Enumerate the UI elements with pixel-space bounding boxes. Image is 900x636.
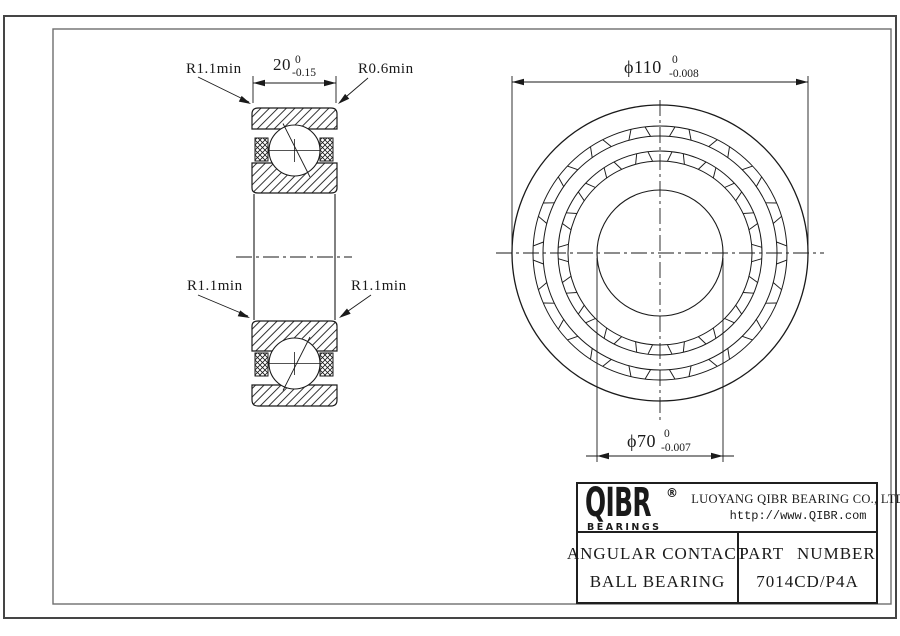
part-number-value: 7014CD/P4A	[756, 572, 859, 592]
cage-pocket-line	[667, 152, 672, 162]
cage-pocket-line	[645, 127, 651, 136]
arrowhead	[711, 453, 723, 459]
arrowhead	[239, 96, 253, 107]
cage-pocket-line	[586, 183, 596, 187]
title-block-header-row: QIBR ® BEARINGS LUOYANG QIBR BEARING CO.…	[578, 484, 876, 533]
fillet-label-bottom-left: R1.1min	[187, 278, 243, 294]
cage-pocket-line	[713, 328, 716, 338]
cage-pocket-line	[709, 140, 718, 147]
registered-trademark-icon: ®	[666, 486, 678, 500]
cage-pocket-line	[538, 283, 546, 290]
cage-pocket-line	[566, 213, 577, 214]
cage-pocket-line	[725, 319, 735, 323]
od-dim-value: ϕ110	[624, 57, 662, 77]
cage-pocket-line	[773, 216, 781, 223]
cage-pocket-line	[669, 127, 675, 136]
cage-pocket-line	[591, 147, 593, 158]
bore-dim-lower: -0.007	[661, 442, 691, 454]
company-name: LUOYANG QIBR BEARING CO., LTD	[691, 492, 900, 507]
cage-pocket-line	[586, 319, 596, 323]
title-block: QIBR ® BEARINGS LUOYANG QIBR BEARING CO.…	[576, 482, 878, 604]
arrowhead	[238, 310, 252, 321]
cage-pocket-line	[683, 154, 684, 165]
cage-pocket-line	[689, 129, 691, 140]
cage-pocket-line	[538, 216, 546, 223]
part-number-cell: PART NUMBER 7014CD/P4A	[739, 533, 876, 602]
cage-section-top-right	[320, 138, 333, 161]
cage-pocket-line	[603, 140, 612, 147]
cage-pocket-line	[636, 154, 637, 165]
cage-pocket-line	[603, 359, 612, 366]
product-type-line1: ANGULAR CONTACT	[567, 544, 748, 564]
cage-pocket-line	[578, 305, 584, 314]
cage-pocket-line	[667, 345, 672, 355]
cage-pocket-line	[713, 168, 716, 178]
cage-section-bottom-right	[320, 353, 333, 376]
cage-pocket-line	[645, 370, 651, 380]
cage-pocket-line	[648, 152, 653, 162]
fillet-label-bottom-right: R1.1min	[351, 278, 407, 294]
fillet-label-top-right: R0.6min	[358, 61, 414, 77]
cage-pocket-line	[562, 224, 571, 230]
arrowhead	[253, 80, 265, 86]
bore-dim-value: ϕ70	[627, 431, 656, 451]
part-number-label: PART NUMBER	[739, 544, 876, 564]
section-view	[236, 108, 352, 406]
width-dim-lower: -0.15	[292, 67, 316, 79]
cage-pocket-line	[742, 336, 752, 340]
bore-dim-upper: 0	[664, 428, 670, 440]
cage-pocket-line	[752, 244, 762, 247]
cage-pocket-line	[698, 337, 706, 344]
cage-section-top-left	[255, 138, 268, 161]
cage-pocket-line	[533, 260, 543, 264]
cage-pocket-line	[689, 366, 691, 377]
cage-pocket-line	[567, 166, 577, 170]
width-dim-upper: 0	[295, 54, 301, 66]
cage-pocket-line	[756, 177, 761, 187]
cage-pocket-line	[533, 242, 543, 246]
front-view	[496, 100, 824, 420]
cage-pocket-line	[566, 293, 577, 294]
drawing-page: 20 0 -0.15 R1.1min R0.6min R1.1min R1.1m…	[0, 0, 900, 636]
logo-text: QIBR	[585, 486, 651, 520]
arrowhead	[512, 79, 524, 85]
arrowhead	[796, 79, 808, 85]
cage-pocket-line	[752, 259, 762, 262]
cage-pocket-line	[736, 192, 742, 201]
cage-pocket-line	[773, 283, 781, 290]
cage-pocket-line	[614, 162, 622, 169]
cage-pocket-line	[749, 224, 758, 230]
od-dim-upper: 0	[672, 54, 678, 66]
cage-pocket-line	[736, 305, 742, 314]
cage-pocket-line	[749, 276, 758, 282]
cage-pocket-line	[591, 348, 593, 359]
company-website: http://www.QIBR.com	[730, 509, 867, 523]
cage-pocket-line	[558, 177, 563, 187]
arrowhead	[324, 80, 336, 86]
cage-pocket-line	[558, 319, 563, 329]
product-type-cell: ANGULAR CONTACT BALL BEARING	[578, 533, 739, 602]
cage-pocket-line	[777, 260, 787, 264]
width-dim-value: 20	[273, 55, 291, 74]
title-block-detail-row: ANGULAR CONTACT BALL BEARING PART NUMBER…	[578, 533, 876, 602]
cage-pocket-line	[614, 337, 622, 344]
cage-pocket-line	[558, 244, 568, 247]
company-logo: QIBR ® BEARINGS	[578, 484, 691, 531]
cage-pocket-line	[728, 348, 730, 359]
cage-pocket-line	[629, 129, 631, 140]
cage-pocket-line	[777, 242, 787, 246]
cage-pocket-line	[629, 366, 631, 377]
cage-pocket-line	[604, 328, 607, 338]
cage-pocket-line	[604, 168, 607, 178]
cage-pocket-line	[728, 147, 730, 158]
cage-pocket-line	[669, 370, 675, 380]
cage-pocket-line	[756, 319, 761, 329]
cage-pocket-line	[743, 293, 754, 294]
cage-pocket-line	[567, 336, 577, 340]
cage-pocket-line	[709, 359, 718, 366]
cage-pocket-line	[562, 276, 571, 282]
cage-section-bottom-left	[255, 353, 268, 376]
arrowhead	[597, 453, 609, 459]
cage-pocket-line	[558, 259, 568, 262]
product-type-line2: BALL BEARING	[590, 572, 726, 592]
cage-pocket-line	[648, 345, 653, 355]
cage-pocket-line	[578, 192, 584, 201]
cage-pocket-line	[743, 213, 754, 214]
cage-pocket-line	[683, 342, 684, 353]
fillet-label-top-left: R1.1min	[186, 61, 242, 77]
cage-pocket-line	[725, 183, 735, 187]
cage-pocket-line	[742, 166, 752, 170]
cage-pocket-line	[636, 342, 637, 353]
company-info: LUOYANG QIBR BEARING CO., LTD http://www…	[691, 484, 900, 531]
od-dim-lower: -0.008	[669, 68, 699, 80]
cage-pocket-line	[698, 162, 706, 169]
